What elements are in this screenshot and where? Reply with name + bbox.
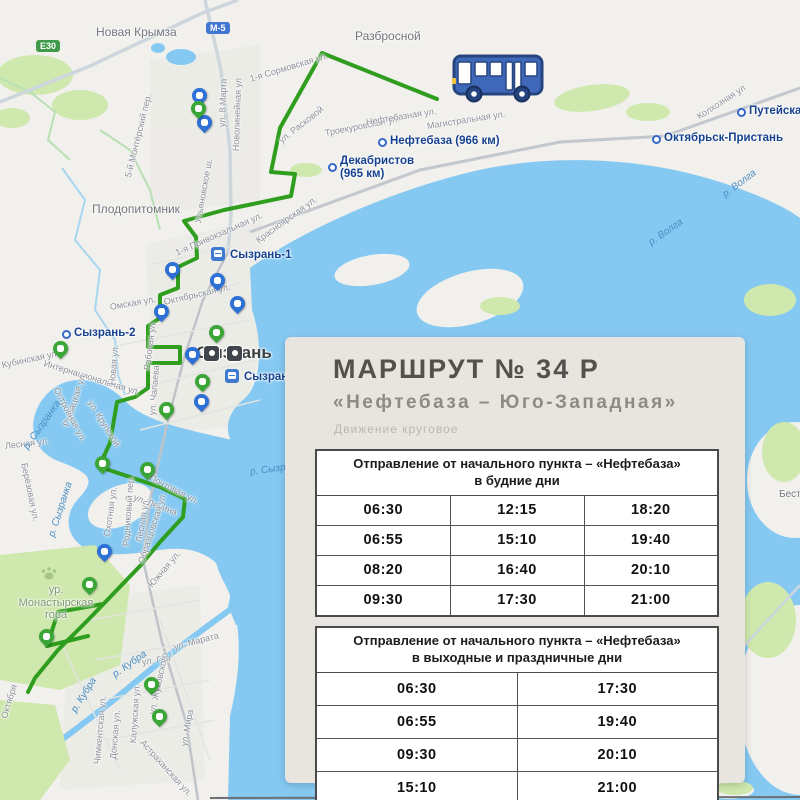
schedule-row: 08:2016:4020:10 [316, 555, 718, 585]
schedule-row: 06:5519:40 [316, 705, 718, 738]
weekday-schedule-table: Отправление от начального пункта – «Нефт… [315, 449, 719, 617]
street-label: ул. Мира [179, 709, 196, 747]
street-label: ул. Марата [173, 630, 220, 652]
courthouse-poi-pin[interactable] [192, 371, 213, 392]
weekday-table-header: Отправление от начального пункта – «Нефт… [316, 450, 718, 495]
station-label: Нефтебаза (966 км) [390, 135, 500, 148]
bus-illustration [448, 48, 548, 110]
road-badge: Е30 [36, 40, 60, 52]
street-label: Октября [0, 683, 19, 719]
road-badge: М-5 [206, 22, 230, 34]
bus-stop-pin[interactable] [227, 293, 248, 314]
station-label: Декабристов (965 км) [340, 155, 414, 181]
place-label: Плодопитомник [92, 203, 180, 217]
time-cell: 16:40 [450, 555, 584, 585]
street-label: ул. 8 Марта [217, 79, 229, 128]
time-cell: 17:30 [450, 585, 584, 616]
time-cell: 20:10 [517, 738, 718, 771]
time-cell: 21:00 [517, 771, 718, 800]
river-label: р. Сызранка [47, 481, 76, 539]
station-label: Октябрьск-Пристань [664, 132, 783, 145]
bus-stop-pin[interactable] [94, 541, 115, 562]
bus-stop-pin[interactable] [191, 391, 212, 412]
time-cell: 06:55 [316, 525, 450, 555]
route-stop-pin[interactable] [156, 399, 177, 420]
railway-station-icon[interactable] [225, 369, 239, 383]
street-label: Новая ул. [107, 344, 121, 385]
time-cell: 19:40 [517, 705, 718, 738]
time-cell: 18:20 [584, 495, 718, 525]
route-stop-pin[interactable] [36, 626, 57, 647]
place-label: Разбросной [355, 30, 421, 44]
paw-icon [40, 566, 58, 581]
station-label: Сызрань-1 [230, 249, 292, 262]
bus-stop-pin[interactable] [162, 259, 183, 280]
time-cell: 17:30 [517, 672, 718, 705]
route-note: Движение круговое [334, 422, 745, 436]
route-title: МАРШРУТ № 34 Р [333, 354, 745, 385]
street-label: Омская ул. [109, 294, 156, 312]
street-label: Магистральная ул. [426, 109, 506, 132]
street-label: Охотная ул. [102, 486, 119, 537]
time-cell: 09:30 [316, 585, 450, 616]
street-label: Красноярская ул. [254, 194, 319, 245]
street-label: 5-й Монтёрский пер. [123, 93, 154, 179]
weekend-table-header: Отправление от начального пункта – «Нефт… [316, 627, 718, 672]
station-circle-icon[interactable] [62, 330, 71, 339]
river-label: р. Волга [721, 168, 759, 201]
time-cell: 15:10 [450, 525, 584, 555]
time-cell: 19:40 [584, 525, 718, 555]
station-label: Путейская [749, 105, 800, 118]
route-stop-pin[interactable] [206, 322, 227, 343]
time-cell: 06:30 [316, 495, 450, 525]
time-cell: 06:30 [316, 672, 517, 705]
street-label: 1-я Сормовская ул. [248, 51, 328, 85]
weekend-schedule-table: Отправление от начального пункта – «Нефт… [315, 626, 719, 800]
station-label: Сызрань-2 [74, 327, 136, 340]
street-label: Чимкентская ул. [92, 696, 108, 765]
station-circle-icon[interactable] [378, 138, 387, 147]
street-label: Калужская ул. [128, 684, 142, 744]
time-cell: 21:00 [584, 585, 718, 616]
station-circle-icon[interactable] [737, 108, 746, 117]
museum-poi-icon[interactable] [203, 345, 220, 362]
river-label: р. Кубра [69, 676, 99, 715]
street-label: Астраханская ул. [138, 738, 194, 798]
route-stop-pin[interactable] [92, 453, 113, 474]
route-subtitle: «Нефтебаза – Юго-Западная» [333, 392, 745, 414]
street-label: Южная ул. [146, 549, 183, 590]
river-label: р. Волга [647, 217, 686, 249]
camera-poi-icon[interactable] [226, 345, 243, 362]
schedule-row: 06:3012:1518:20 [316, 495, 718, 525]
station-circle-icon[interactable] [328, 163, 337, 172]
time-cell: 06:55 [316, 705, 517, 738]
map[interactable]: 1-я Сормовская ул.ул. РасковойТроекуровс… [0, 0, 800, 800]
time-cell: 12:15 [450, 495, 584, 525]
schedule-panel: МАРШРУТ № 34 Р «Нефтебаза – Юго-Западная… [285, 337, 745, 783]
time-cell: 09:30 [316, 738, 517, 771]
street-label: Донская ул. [108, 710, 123, 760]
station-circle-icon[interactable] [652, 135, 661, 144]
schedule-row: 09:3017:3021:00 [316, 585, 718, 616]
place-label: Новая Крымза [96, 26, 177, 40]
schedule-row: 06:5515:1019:40 [316, 525, 718, 555]
schedule-row: 09:3020:10 [316, 738, 718, 771]
place-label: Бест [779, 489, 800, 501]
street-label: Ульяновское ш. [193, 158, 215, 224]
schedule-row: 15:1021:00 [316, 771, 718, 800]
street-label: Берёзовая ул. [19, 462, 41, 522]
street-label: ул. Крупской [86, 398, 123, 448]
railway-station-icon[interactable] [211, 247, 225, 261]
time-cell: 15:10 [316, 771, 517, 800]
schedule-row: 06:3017:30 [316, 672, 718, 705]
street-label: ул. Расковой [277, 104, 326, 145]
street-label: Рабочая ул. [142, 320, 158, 371]
street-label: Новолинейная ул [231, 78, 244, 152]
time-cell: 20:10 [584, 555, 718, 585]
time-cell: 08:20 [316, 555, 450, 585]
